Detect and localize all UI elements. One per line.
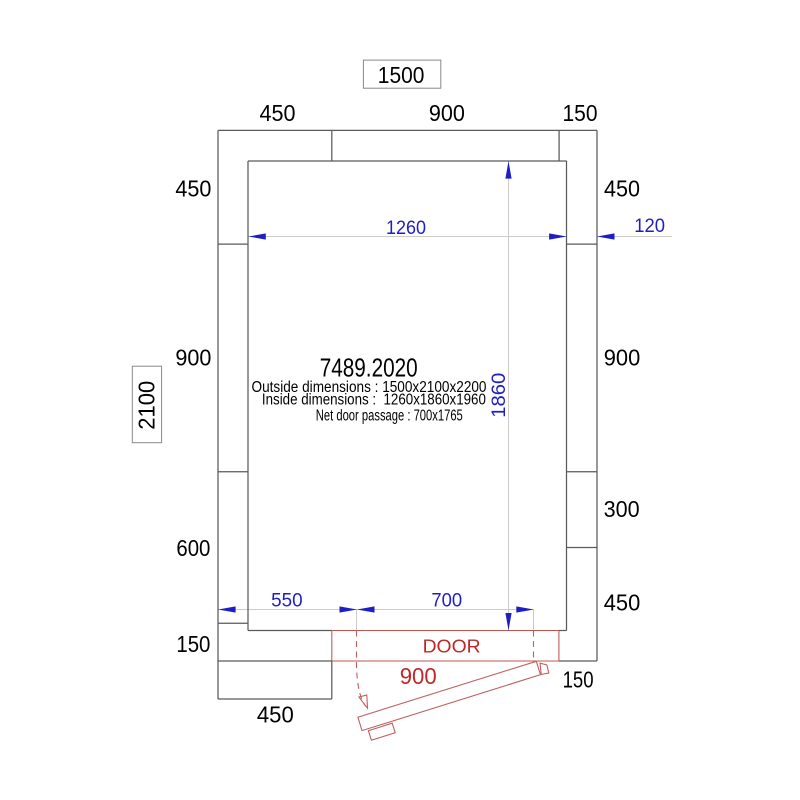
svg-text:900: 900 <box>604 345 641 371</box>
svg-text:900: 900 <box>175 345 211 371</box>
svg-text:450: 450 <box>257 702 294 728</box>
svg-text:450: 450 <box>260 100 296 126</box>
svg-text:DOOR: DOOR <box>423 635 481 656</box>
svg-text:550: 550 <box>271 589 303 611</box>
svg-text:450: 450 <box>604 590 641 616</box>
svg-text:1500: 1500 <box>378 62 425 88</box>
svg-text:900: 900 <box>400 663 437 689</box>
svg-text:450: 450 <box>175 175 211 201</box>
svg-text:300: 300 <box>604 496 640 522</box>
svg-text:120: 120 <box>634 215 665 237</box>
svg-text:700: 700 <box>431 589 462 611</box>
svg-text:Net door passage : 700x1765: Net door passage : 700x1765 <box>316 407 463 424</box>
svg-text:2100: 2100 <box>134 381 160 430</box>
svg-text:Inside dimensions : 1260x1860: Inside dimensions : 1260x1860x1960 <box>262 391 486 408</box>
svg-text:1860: 1860 <box>488 373 510 418</box>
svg-text:7489.2020: 7489.2020 <box>320 354 418 382</box>
svg-text:450: 450 <box>604 175 640 201</box>
svg-text:1260: 1260 <box>386 217 426 239</box>
svg-text:150: 150 <box>563 666 594 692</box>
svg-text:600: 600 <box>176 535 210 561</box>
svg-text:150: 150 <box>176 631 210 657</box>
svg-text:150: 150 <box>563 100 598 126</box>
svg-text:900: 900 <box>429 100 465 126</box>
